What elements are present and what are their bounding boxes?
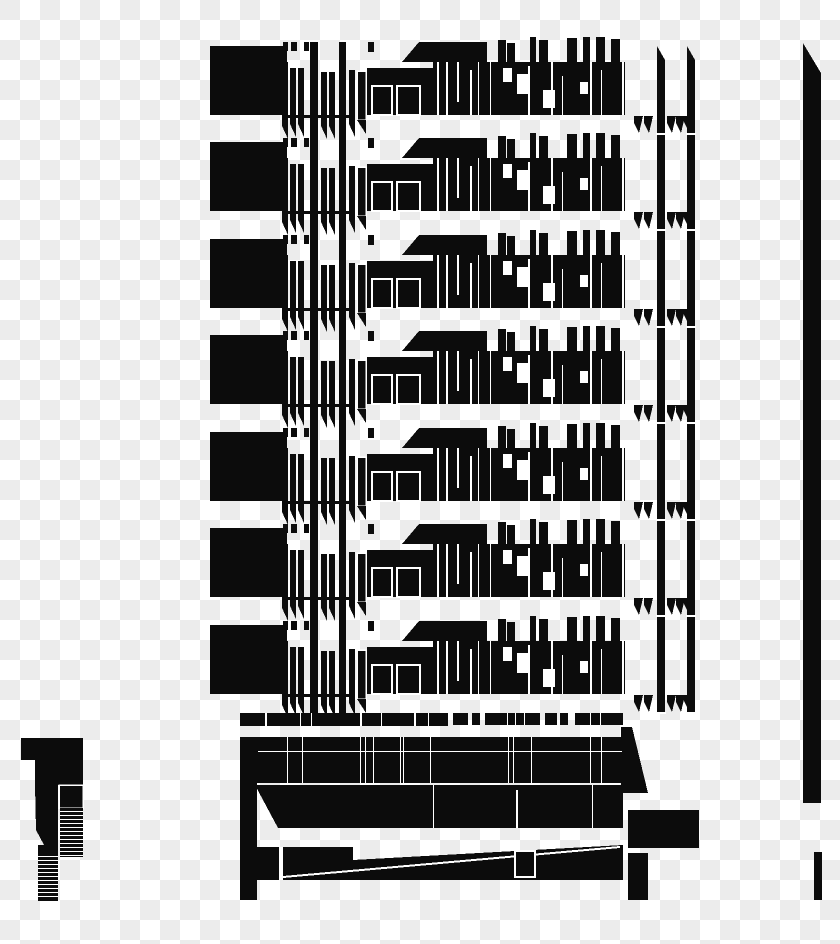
- chimney-block: [596, 616, 605, 641]
- glitch-slit: [437, 544, 439, 597]
- window-frame: [397, 182, 420, 211]
- stair-flight-tread: [60, 847, 83, 848]
- comma-mark: [667, 502, 676, 519]
- glitch-notch: [543, 90, 555, 108]
- window-frame: [397, 279, 420, 308]
- comma-mark: [676, 695, 685, 712]
- chimney-block: [583, 519, 590, 544]
- stair-flight-tread: [38, 880, 58, 881]
- glitch-slit: [562, 655, 563, 694]
- louver-slat: [298, 164, 304, 233]
- louver-slat-tip: [357, 506, 366, 520]
- stair-flight-tread: [60, 831, 83, 832]
- stair-tower-cap: [21, 738, 83, 760]
- comma-mark: [644, 598, 653, 615]
- comma-mark: [644, 309, 653, 326]
- glitch-slit: [528, 548, 530, 597]
- chimney-block: [583, 230, 590, 255]
- comma-mark: [634, 405, 643, 422]
- roof-parapet-bit: [291, 331, 297, 340]
- glitch-slit: [457, 641, 459, 681]
- louver-slat-outlined: [357, 650, 366, 699]
- louver-slat: [282, 641, 288, 718]
- dash-slit: [600, 713, 601, 725]
- louver-slat: [329, 265, 335, 332]
- band-slit: [360, 737, 361, 783]
- glitch-slit: [446, 158, 448, 211]
- chimney-block: [611, 618, 620, 641]
- window-frame: [372, 375, 392, 404]
- glitch-notch: [543, 379, 555, 397]
- glitch-slit: [601, 649, 602, 694]
- glitch-slit: [590, 62, 592, 115]
- glitch-slit: [622, 62, 624, 115]
- glitch-notch: [543, 186, 555, 204]
- floor-line: [283, 404, 349, 407]
- chimney-block: [507, 236, 515, 255]
- glitch-slit: [446, 448, 448, 501]
- window-frame: [372, 182, 392, 211]
- column-joint: [686, 326, 696, 328]
- floor-slab-left: [210, 528, 287, 597]
- glitch-slit: [562, 172, 563, 211]
- louver-slat: [321, 168, 327, 235]
- comma-mark: [634, 309, 643, 326]
- glitch-notch: [543, 669, 555, 687]
- glitch-slit: [490, 544, 491, 597]
- roof-parallelogram: [402, 621, 487, 641]
- band-slit: [287, 737, 288, 783]
- comma-mark: [676, 502, 685, 519]
- roof-parapet-bit: [304, 331, 309, 340]
- column-joint: [656, 133, 666, 135]
- glitch-slit: [490, 158, 491, 211]
- floor-line: [283, 211, 349, 214]
- floor-line: [283, 115, 349, 118]
- glitch-slit: [478, 351, 479, 404]
- comma-mark: [676, 309, 685, 326]
- podium-band-wedge: [621, 727, 648, 793]
- chimney-block: [530, 326, 536, 351]
- glitch-slit: [446, 255, 448, 308]
- roof-parallelogram: [402, 331, 487, 351]
- comma-mark: [644, 695, 653, 712]
- stair-flight-tread: [38, 896, 58, 897]
- glitch-slit: [601, 263, 602, 308]
- comma-mark: [676, 212, 685, 229]
- chimney-block: [583, 133, 590, 158]
- comma-mark: [667, 116, 676, 133]
- chimney-block: [596, 423, 605, 448]
- floor-line: [283, 694, 349, 697]
- glitch-slit: [478, 641, 479, 694]
- comma-mark: [676, 405, 685, 422]
- podium-left-pier: [240, 737, 257, 900]
- window-frame: [372, 279, 392, 308]
- chimney-block: [539, 619, 548, 641]
- glitch-notch: [543, 283, 555, 301]
- floor-slab-left: [210, 432, 287, 501]
- louver-slat: [349, 456, 355, 523]
- stair-landing-box: [59, 785, 83, 808]
- glitch-slit: [622, 255, 624, 308]
- louver-slat: [282, 62, 288, 139]
- louver-slat: [290, 261, 296, 330]
- chimney-block: [539, 522, 548, 544]
- floor-slab-left: [210, 142, 287, 211]
- chimney-block: [498, 233, 506, 255]
- band-slit: [531, 737, 532, 783]
- ground-strip-slit: [381, 713, 382, 726]
- glitch-slit: [446, 351, 448, 404]
- glitch-slit: [478, 158, 479, 211]
- roof-parapet-bit: [283, 138, 288, 147]
- band-slit: [430, 737, 431, 783]
- floor-slab-left: [210, 335, 287, 404]
- louver-slat: [329, 168, 335, 235]
- roof-parapet-bit: [291, 524, 297, 533]
- louver-slat: [290, 647, 296, 716]
- comma-mark: [676, 598, 685, 615]
- stair-flight-tread: [38, 868, 58, 869]
- louver-slat-tip: [357, 409, 366, 423]
- louver-slat-outlined: [357, 264, 366, 313]
- comma-mark: [667, 212, 676, 229]
- glitch-slit: [470, 552, 472, 597]
- glitch-slit: [562, 365, 563, 404]
- glitch-notch: [580, 564, 588, 576]
- roof-parapet-bit: [283, 428, 288, 437]
- glitch-slit: [478, 255, 479, 308]
- band-slit: [302, 737, 303, 783]
- stair-flight-tread: [38, 884, 58, 885]
- chimney-block: [583, 326, 590, 351]
- dash-slit: [515, 713, 516, 725]
- louver-slat-tip: [357, 216, 366, 230]
- comma-mark: [634, 116, 643, 133]
- louver-slat-outlined: [357, 167, 366, 216]
- glitch-slit: [437, 158, 439, 211]
- band-slit: [508, 737, 509, 783]
- band-slit: [400, 737, 401, 783]
- stair-flight-tread: [38, 876, 58, 877]
- chimney-block: [596, 230, 605, 255]
- louver-slat: [290, 357, 296, 426]
- glitch-slit: [562, 462, 563, 501]
- glitch-slit: [622, 158, 624, 211]
- stair-flight-tread: [60, 855, 83, 856]
- roof-parapet-bit: [368, 428, 374, 438]
- louver-slat: [298, 68, 304, 137]
- roof-parapet-bit: [291, 138, 297, 147]
- far-right-pylon: [803, 43, 821, 803]
- band-slit: [516, 790, 518, 828]
- glitch-notch: [503, 261, 512, 275]
- louver-slat: [329, 361, 335, 428]
- louver-slat: [321, 265, 327, 332]
- comma-mark: [667, 405, 676, 422]
- louver-slat: [321, 361, 327, 428]
- louver-slat: [282, 351, 288, 428]
- chimney-block: [583, 37, 590, 62]
- glitch-slit: [437, 255, 439, 308]
- roof-parapet-bit: [304, 235, 309, 244]
- glitch-slit: [528, 162, 530, 211]
- glitch-slit: [478, 544, 479, 597]
- stair-tower-upper: [35, 760, 83, 785]
- glitch-slit: [622, 544, 624, 597]
- window-frame: [372, 568, 392, 597]
- column-joint: [686, 229, 696, 231]
- louver-slat: [298, 454, 304, 523]
- comma-mark: [634, 598, 643, 615]
- louver-slat: [282, 255, 288, 332]
- chimney-block: [507, 622, 515, 641]
- louver-slat: [349, 649, 355, 716]
- chimney-block: [507, 332, 515, 351]
- chimney-block: [530, 133, 536, 158]
- glitch-notch: [580, 661, 588, 673]
- glitch-slit: [590, 351, 592, 404]
- roof-parallelogram: [402, 524, 487, 544]
- stair-flight-tread: [60, 835, 83, 836]
- chimney-block: [539, 136, 548, 158]
- louver-slat: [282, 158, 288, 235]
- chimney-block: [611, 425, 620, 448]
- chimney-block: [611, 521, 620, 544]
- band-slit: [601, 737, 602, 783]
- ground-strip-slit: [311, 713, 312, 726]
- floor-line: [283, 308, 349, 311]
- glitch-slit: [470, 359, 472, 404]
- chimney-block: [507, 139, 515, 158]
- glitch-notch: [517, 653, 528, 673]
- flag-block-vertical: [628, 853, 648, 900]
- roof-parapet-bit: [368, 42, 374, 52]
- ground-strip-slit: [414, 713, 416, 726]
- window-frame: [397, 86, 420, 115]
- glitch-slit: [601, 166, 602, 211]
- glitch-notch: [517, 170, 528, 190]
- lower-band-slit: [279, 847, 283, 880]
- ground-strip-slit: [300, 713, 301, 726]
- glitch-slit: [590, 255, 592, 308]
- band-slit: [590, 737, 591, 783]
- stair-flight-tread: [60, 815, 83, 816]
- louver-slat: [290, 454, 296, 523]
- dash-slit: [590, 713, 591, 725]
- louver-slat: [298, 357, 304, 426]
- glitch-slit: [528, 452, 530, 501]
- chimney-block: [498, 522, 506, 544]
- floor-slab-left: [210, 625, 287, 694]
- window-frame: [372, 665, 392, 694]
- chimney-block: [611, 328, 620, 351]
- floor-line: [283, 597, 349, 600]
- window-frame: [397, 568, 420, 597]
- roof-parapet-bit: [291, 621, 297, 630]
- glitch-slit: [590, 158, 592, 211]
- chimney-block: [507, 525, 515, 544]
- glitch-slit: [590, 544, 592, 597]
- roof-parapet-bit: [283, 621, 288, 630]
- stair-flight-tread: [60, 843, 83, 844]
- chimney-block: [611, 135, 620, 158]
- chimney-block: [567, 617, 577, 641]
- louver-slat: [329, 72, 335, 139]
- window-frame: [397, 665, 420, 694]
- louver-slat: [329, 651, 335, 718]
- chimney-block: [530, 37, 536, 62]
- comma-mark: [644, 212, 653, 229]
- glitch-slit: [457, 158, 459, 198]
- glitch-slit: [470, 263, 472, 308]
- glitch-slit: [437, 351, 439, 404]
- glitch-slit: [528, 355, 530, 404]
- glitch-slit: [622, 641, 624, 694]
- ground-strip-dash: [453, 713, 468, 725]
- roof-parallelogram: [402, 428, 487, 448]
- louver-slat: [298, 550, 304, 619]
- chimney-block: [583, 616, 590, 641]
- ground-strip-slit: [360, 713, 362, 726]
- roof-parapet-bit: [304, 524, 309, 533]
- floor-slab-left: [210, 239, 287, 308]
- chimney-block: [530, 423, 536, 448]
- band-hairline: [258, 751, 622, 752]
- glitch-notch: [517, 556, 528, 576]
- building-section-artwork: [0, 0, 840, 944]
- chimney-block: [567, 231, 577, 255]
- glitch-notch: [580, 82, 588, 94]
- column-joint: [656, 326, 666, 328]
- roof-parapet-bit: [283, 235, 288, 244]
- louver-slat: [290, 550, 296, 619]
- roof-parallelogram: [402, 235, 487, 255]
- comma-mark: [634, 502, 643, 519]
- roof-parapet-bit: [291, 428, 297, 437]
- podium-band-upper: [240, 737, 623, 783]
- glitch-slit: [478, 62, 479, 115]
- window-frame: [397, 472, 420, 501]
- roof-parapet-bit: [283, 524, 288, 533]
- ground-strip-dash: [485, 713, 540, 725]
- louver-slat: [321, 72, 327, 139]
- glitch-slit: [457, 544, 459, 584]
- louver-slat: [349, 552, 355, 619]
- ground-strip-dash: [575, 713, 623, 725]
- column-joint: [686, 712, 696, 714]
- ground-strip: [240, 713, 448, 726]
- ground-strip-dash: [472, 713, 480, 725]
- column-joint: [656, 422, 666, 424]
- glitch-slit: [622, 448, 624, 501]
- glitch-slit: [601, 456, 602, 501]
- stair-flight-tread: [38, 864, 58, 865]
- glitch-slit: [437, 641, 439, 694]
- louver-slat: [329, 458, 335, 525]
- comma-mark: [676, 116, 685, 133]
- glitch-slit: [562, 558, 563, 597]
- glitch-slit: [528, 645, 530, 694]
- stair-flight-tread: [60, 819, 83, 820]
- chimney-block: [507, 43, 515, 62]
- comma-mark: [644, 405, 653, 422]
- roof-parapet-bit: [368, 331, 374, 341]
- louver-slat: [349, 70, 355, 137]
- stair-flight-tread: [60, 839, 83, 840]
- chimney-block: [498, 329, 506, 351]
- roof-parapet-bit: [368, 524, 374, 534]
- roof-parallelogram: [402, 42, 487, 62]
- glitch-slit: [601, 70, 602, 115]
- glitch-notch: [503, 550, 512, 564]
- chimney-block: [507, 429, 515, 448]
- louver-slat-tip: [357, 699, 366, 713]
- ground-strip-dash: [545, 713, 557, 725]
- glitch-notch: [580, 468, 588, 480]
- glitch-notch: [580, 371, 588, 383]
- band-slit: [433, 785, 434, 828]
- glitch-slit: [470, 70, 472, 115]
- glitch-notch: [580, 178, 588, 190]
- window-frame: [372, 472, 392, 501]
- louver-slat-outlined: [357, 457, 366, 506]
- column-joint: [686, 422, 696, 424]
- glitch-slit: [446, 62, 448, 115]
- column-joint: [686, 519, 696, 521]
- band-slit: [373, 737, 374, 783]
- glitch-slit: [446, 641, 448, 694]
- stair-flight-tread: [38, 860, 58, 861]
- stair-flight-tread: [38, 888, 58, 889]
- glitch-slit: [437, 62, 439, 115]
- stair-flight-tread: [60, 811, 83, 812]
- louver-slat: [282, 544, 288, 621]
- roof-parapet-bit: [283, 42, 288, 51]
- flag-block-horizontal: [628, 810, 699, 848]
- chimney-block: [596, 326, 605, 351]
- ground-strip-slit: [265, 713, 267, 726]
- glitch-slit: [457, 255, 459, 295]
- comma-mark: [667, 695, 676, 712]
- chimney-block: [530, 519, 536, 544]
- roof-parapet-bit: [291, 42, 297, 51]
- column-joint: [656, 229, 666, 231]
- column-joint: [656, 615, 666, 617]
- glitch-slit: [437, 448, 439, 501]
- chimney-block: [498, 426, 506, 448]
- roof-parapet-bit: [368, 621, 374, 631]
- tall-column: [310, 42, 318, 713]
- chimney-block: [567, 38, 577, 62]
- louver-slat: [282, 448, 288, 525]
- ground-strip-slit: [428, 713, 429, 726]
- chimney-block: [498, 619, 506, 641]
- roof-parapet-bit: [304, 42, 309, 51]
- stair-flight-tread: [38, 892, 58, 893]
- floor-slab-left: [210, 46, 287, 115]
- glitch-slit: [590, 641, 592, 694]
- glitch-notch: [517, 267, 528, 287]
- louver-slat-tip: [357, 602, 366, 616]
- glitch-slit: [528, 66, 530, 115]
- louver-slat: [290, 68, 296, 137]
- louver-slat-outlined: [357, 553, 366, 602]
- glitch-notch: [517, 363, 528, 383]
- louver-slat: [298, 261, 304, 330]
- glitch-slit: [590, 448, 592, 501]
